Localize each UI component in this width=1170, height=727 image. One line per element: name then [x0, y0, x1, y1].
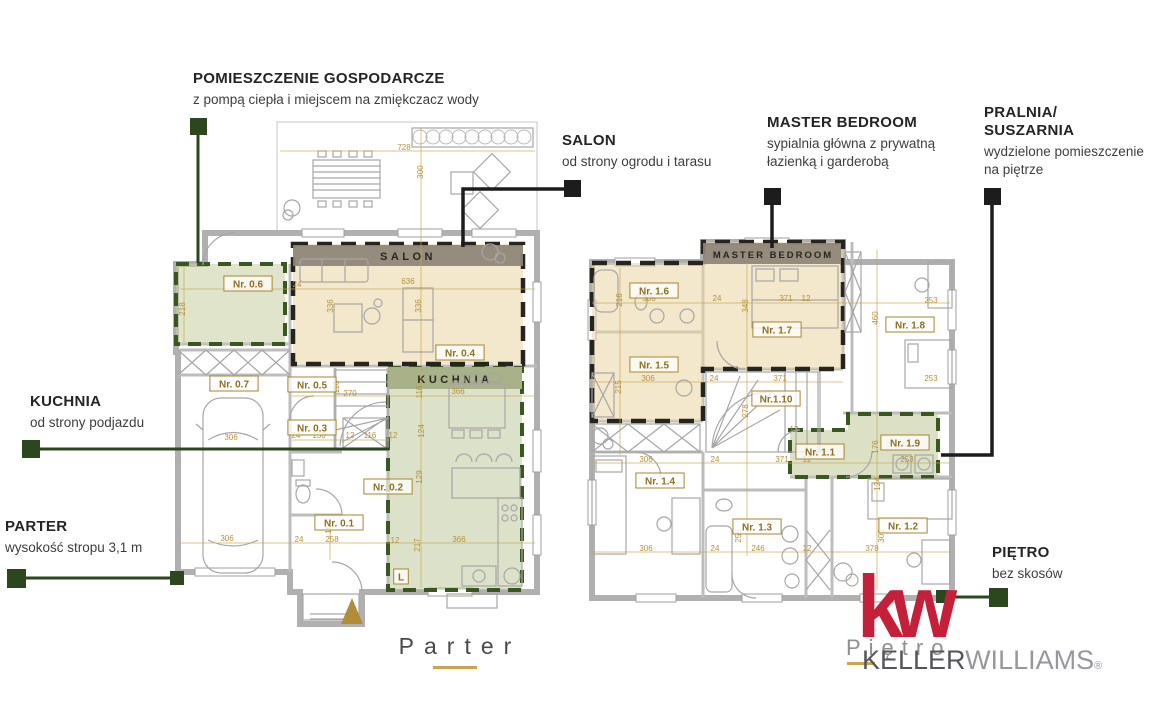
room-number-label: L [398, 573, 404, 584]
room-number-label: Nr. 0.3 [297, 424, 327, 435]
dimension-label: 306 [220, 534, 234, 543]
dimension-label: 12 [389, 431, 398, 440]
dimension-label: 371 [775, 455, 789, 464]
master-band-label: MASTER BEDROOM [713, 250, 833, 261]
callout-title: SALON [562, 132, 711, 150]
dimension-label: 176 [871, 440, 880, 454]
callout-title: POMIESZCZENIE GOSPODARCZE [193, 70, 479, 88]
callout-pralnia-suszarnia: PRALNIA/ SUSZARNIA wydzielone pomieszcze… [984, 104, 1144, 179]
dimension-label: 12 [346, 431, 355, 440]
dimension-label: 278 [741, 404, 750, 418]
dimension-label: 24 [710, 374, 719, 383]
callout-pietro: PIĘTRO bez skosów [992, 544, 1063, 583]
dimension-label: 336 [414, 299, 423, 313]
callout-title: MASTER BEDROOM [767, 114, 935, 132]
dimension-label: 246 [751, 544, 765, 553]
room-number-label: Nr. 0.1 [324, 519, 354, 530]
lounge-chair [474, 154, 511, 191]
dimension-label: 253 [924, 374, 938, 383]
dimension-label: 217 [413, 538, 422, 552]
logo-keller-text: KELLER [862, 645, 965, 675]
keller-williams-wordmark: KELLERWILLIAMS® [862, 645, 1102, 676]
dimension-label: 348 [741, 299, 750, 313]
dimension-label: 24 [295, 535, 304, 544]
marker-salon [564, 180, 581, 197]
keller-williams-kw-logo: kw [857, 572, 946, 642]
callout-subtitle: bez skosów [992, 565, 1063, 583]
room-number-label: Nr. 1.6 [639, 287, 669, 298]
callout-subtitle: od strony podjazdu [30, 414, 144, 432]
pietro-plan: MASTER BEDROOM [588, 238, 956, 602]
room-number-label: Nr. 0.6 [233, 280, 263, 291]
garden-table [313, 151, 380, 207]
room-number-label: Nr. 1.5 [639, 361, 669, 372]
callout-title: PIĘTRO [992, 544, 1063, 562]
room-number-label: Nr. 1.7 [762, 326, 792, 337]
logo-registered-mark: ® [1094, 660, 1102, 672]
callout-kuchnia: KUCHNIA od strony podjazdu [30, 393, 144, 432]
callout-subtitle: sypialnia główna z prywatną łazienką i g… [767, 135, 935, 171]
callout-subtitle: od strony ogrodu i tarasu [562, 153, 711, 171]
parter-plan: SALON KUCHNIA [176, 122, 541, 624]
room-number-label: Nr.1.10 [760, 395, 793, 406]
dimension-label: 124 [417, 424, 426, 438]
dimension-label: 306 [639, 544, 653, 553]
callout-subtitle: wysokość stropu 3,1 m [5, 539, 142, 557]
dimension-label: 378 [865, 544, 879, 553]
parter-title-underline [433, 666, 477, 669]
marker-pralnia [984, 188, 1001, 205]
dimension-label: 300 [416, 165, 425, 179]
marker-pietro [989, 588, 1008, 607]
dimension-label: 366 [451, 387, 465, 396]
callout-title: KUCHNIA [30, 393, 144, 411]
dimension-label: 306 [641, 374, 655, 383]
dimension-label: 24 [711, 544, 720, 553]
callout-subtitle: wydzielone pomieszczenie na piętrze [984, 143, 1144, 179]
dimension-label: 460 [871, 311, 880, 325]
marker-gospodarcze [190, 118, 207, 135]
logo-williams-text: WILLIAMS [965, 645, 1094, 675]
dimension-label: 253 [900, 455, 914, 464]
room-number-label: Nr. 1.1 [805, 448, 835, 459]
dimension-label: 216 [615, 293, 624, 307]
dimension-label: 129 [415, 470, 424, 484]
garage-door [195, 568, 275, 576]
callout-parter: PARTER wysokość stropu 3,1 m [5, 518, 142, 557]
callout-title: PRALNIA/ SUSZARNIA [984, 104, 1144, 140]
marker-parter-end [170, 571, 184, 585]
plant [284, 200, 300, 216]
room-number-label: Nr. 0.4 [445, 349, 475, 360]
dimension-label: 116 [415, 385, 424, 398]
floorplan-page: SALON KUCHNIA [0, 0, 1170, 727]
dimension-label: 258 [325, 535, 339, 544]
dimension-label: 336 [326, 299, 335, 313]
room-number-label: Nr. 1.8 [895, 321, 925, 332]
dimension-label: 24 [713, 294, 722, 303]
callout-pomieszczenie-gospodarcze: POMIESZCZENIE GOSPODARCZE z pompą ciepła… [193, 70, 479, 109]
parter-plan-title: Parter [380, 633, 540, 660]
dimension-label: 12 [802, 294, 811, 303]
marker-kuchnia [22, 440, 40, 458]
dimension-label: 728 [397, 143, 411, 152]
room-number-label: Nr. 0.7 [219, 380, 249, 391]
dimension-label: 116 [364, 431, 377, 440]
callout-title: PARTER [5, 518, 142, 536]
dimension-label: 215 [614, 380, 623, 394]
room-number-label: Nr. 0.5 [297, 381, 327, 392]
dimension-label: 366 [452, 535, 466, 544]
callout-subtitle: z pompą ciepła i miejscem na zmiękczacz … [193, 91, 479, 109]
marker-parter [7, 569, 26, 588]
dimension-label: 12 [803, 544, 812, 553]
callout-master-bedroom: MASTER BEDROOM sypialnia główna z prywat… [767, 114, 935, 171]
marker-master-bedroom [764, 188, 781, 205]
room-number-label: Nr. 1.2 [888, 522, 918, 533]
dimension-label: 218 [178, 302, 187, 316]
dimension-label: 12 [391, 536, 400, 545]
lounge-chair [462, 192, 499, 229]
room-number-label: Nr. 0.2 [373, 483, 403, 494]
room-number-label: Nr. 1.3 [742, 523, 772, 534]
dimension-label: 253 [924, 296, 938, 305]
dimension-label: 371 [773, 374, 787, 383]
dimension-label: 371 [779, 294, 793, 303]
dimension-label: 306 [639, 455, 653, 464]
room-number-label: Nr. 1.4 [645, 477, 675, 488]
terrace [277, 122, 537, 233]
dimension-label: 306 [224, 433, 238, 442]
dimension-label: 270 [343, 389, 357, 398]
callout-salon: SALON od strony ogrodu i tarasu [562, 132, 711, 171]
dimension-label: 24 [293, 280, 302, 289]
dimension-label: 24 [711, 455, 720, 464]
dimension-label: 124 [873, 477, 882, 491]
salon-band-label: SALON [380, 251, 436, 263]
room-number-label: Nr. 1.9 [890, 439, 920, 450]
dimension-label: 636 [401, 277, 415, 286]
dimension-label: 12 [790, 425, 799, 434]
